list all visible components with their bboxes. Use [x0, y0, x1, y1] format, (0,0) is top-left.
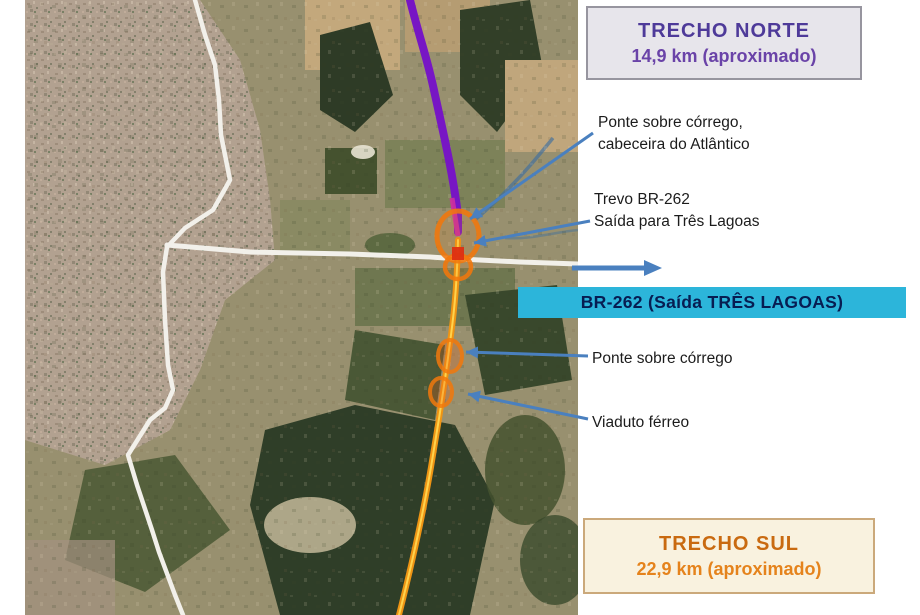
annotation-viaduto-ferreo: Viaduto férreo [592, 412, 689, 434]
trecho-norte-title: TRECHO NORTE [588, 20, 860, 43]
annotation-line: Ponte sobre córrego [592, 348, 732, 370]
trecho-norte-length: 14,9 km (aproximado) [588, 46, 860, 67]
annotation-line: cabeceira do Atlântico [598, 134, 750, 156]
trecho-norte-box: TRECHO NORTE 14,9 km (aproximado) [586, 6, 862, 80]
satellite-map-canvas [25, 0, 578, 615]
annotation-line: Trevo BR-262 [594, 189, 759, 211]
trecho-sul-title: TRECHO SUL [585, 533, 873, 556]
annotation-line: Saída para Três Lagoas [594, 211, 759, 233]
east-direction-arrow-icon [572, 260, 662, 276]
annotation-ponte-atlantico: Ponte sobre córrego, cabeceira do Atlânt… [598, 112, 750, 157]
annotation-line: Ponte sobre córrego, [598, 112, 750, 134]
br262-banner: BR-262 (Saída TRÊS LAGOAS) [518, 287, 906, 318]
annotation-line: Viaduto férreo [592, 412, 689, 434]
rail-viaduct-highlight-marker [430, 378, 452, 406]
bridge-highlight-marker [438, 340, 462, 372]
trecho-sul-length: 22,9 km (aproximado) [585, 559, 873, 580]
junction-dot [452, 247, 464, 260]
figure-stage: TRECHO NORTE 14,9 km (aproximado) Ponte … [0, 0, 920, 615]
satellite-map [25, 0, 578, 615]
trecho-sul-box: TRECHO SUL 22,9 km (aproximado) [583, 518, 875, 594]
annotation-trevo-br262: Trevo BR-262 Saída para Três Lagoas [594, 189, 759, 234]
annotation-ponte-corrego: Ponte sobre córrego [592, 348, 732, 370]
terrain-noise [25, 0, 578, 615]
